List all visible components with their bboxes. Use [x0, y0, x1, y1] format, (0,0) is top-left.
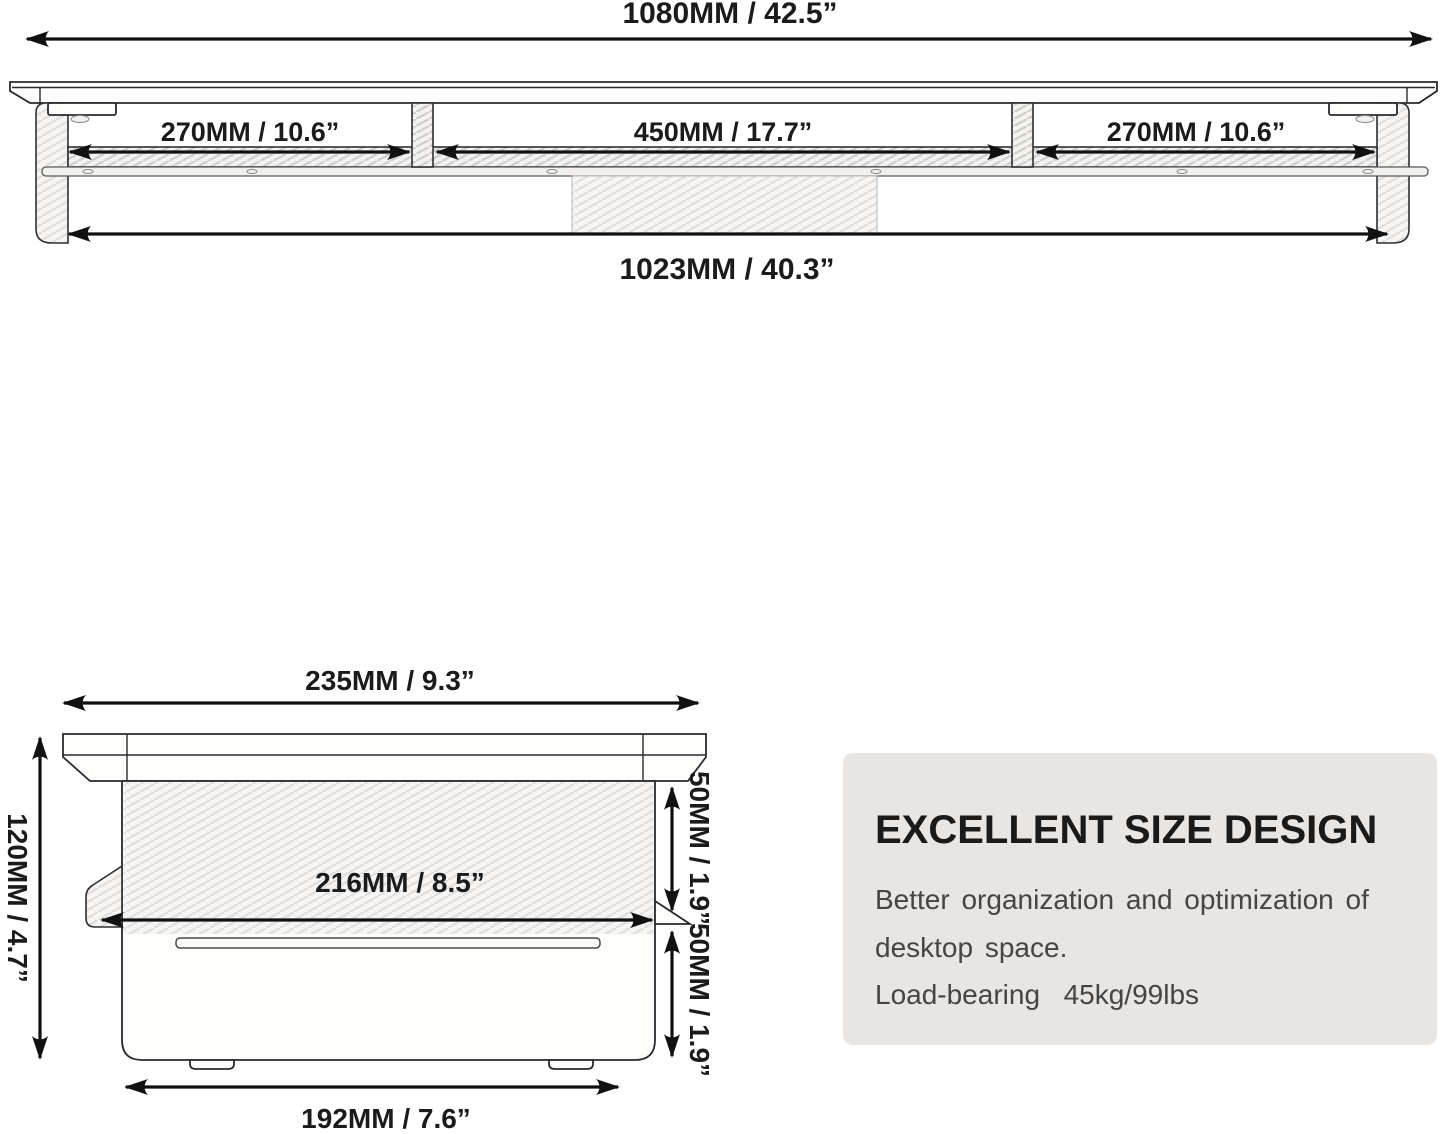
front-shelf-surface: [68, 147, 1377, 167]
side-body-hatching: [124, 782, 654, 934]
side-top-width-label: 235MM / 9.3”: [305, 665, 475, 696]
front-right-divider: [1012, 103, 1033, 167]
side-lower-clearance-label: 50MM / 1.9”: [684, 923, 715, 1077]
info-box: EXCELLENT SIZE DESIGN Better organizatio…: [843, 753, 1437, 1045]
front-left-bracket: [48, 103, 116, 115]
side-height-label: 120MM / 4.7”: [2, 813, 33, 983]
front-total-width-label: 1080MM / 42.5”: [622, 0, 837, 30]
front-left-divider: [412, 103, 433, 167]
front-right-screw: [1356, 116, 1374, 123]
info-box-body-line2: desktop space.: [875, 932, 1067, 963]
front-view: 1080MM / 42.5” 270MM: [10, 0, 1437, 286]
front-left-screw: [71, 116, 89, 123]
front-right-bracket: [1329, 103, 1397, 115]
diagram-svg: 1080MM / 42.5” 270MM: [0, 0, 1445, 1134]
front-left-section-label: 270MM / 10.6”: [161, 117, 340, 147]
side-shelf-slot: [176, 938, 600, 948]
front-inner-width-label: 1023MM / 40.3”: [619, 253, 834, 286]
side-top-board: [63, 734, 706, 781]
product-dimension-diagram: 1080MM / 42.5” 270MM: [0, 0, 1445, 1134]
side-inner-width-label: 216MM / 8.5”: [315, 867, 485, 898]
info-box-body-line1: Better organization and optimization of: [875, 884, 1369, 915]
side-upper-clearance-label: 50MM / 1.9”: [684, 771, 715, 925]
front-right-section-label: 270MM / 10.6”: [1107, 117, 1286, 147]
info-box-title: EXCELLENT SIZE DESIGN: [875, 808, 1377, 852]
side-left-hook: [86, 866, 122, 927]
side-right-foot: [549, 1060, 593, 1069]
front-middle-section-label: 450MM / 17.7”: [634, 117, 813, 147]
front-top-board: [10, 82, 1437, 103]
side-base-width-label: 192MM / 7.6”: [301, 1103, 471, 1134]
front-back-panel: [572, 176, 877, 233]
side-view: 235MM / 9.3” 216MM / 8.5” 120MM / 4.7” 5…: [2, 665, 715, 1134]
side-left-foot: [190, 1060, 234, 1069]
info-box-body-line3: Load-bearing 45kg/99lbs: [875, 979, 1199, 1010]
